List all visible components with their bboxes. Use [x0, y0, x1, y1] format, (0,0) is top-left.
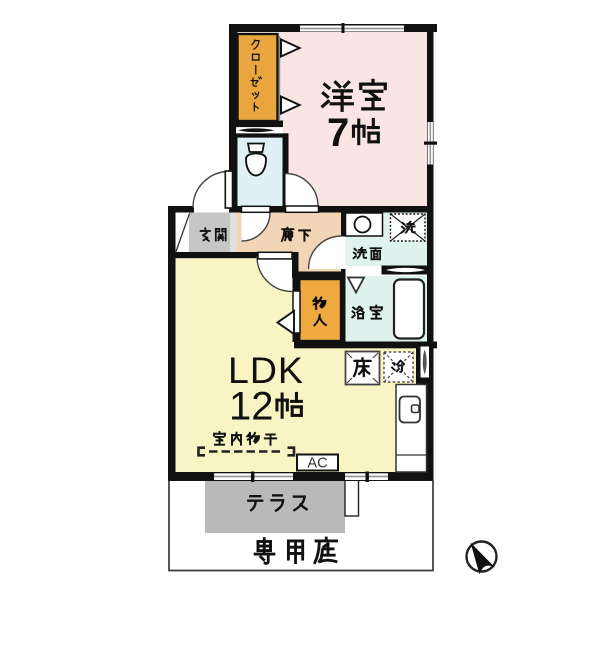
- svg-text:7: 7: [327, 111, 349, 155]
- svg-text:AC: AC: [307, 455, 327, 471]
- svg-text:12: 12: [229, 385, 274, 429]
